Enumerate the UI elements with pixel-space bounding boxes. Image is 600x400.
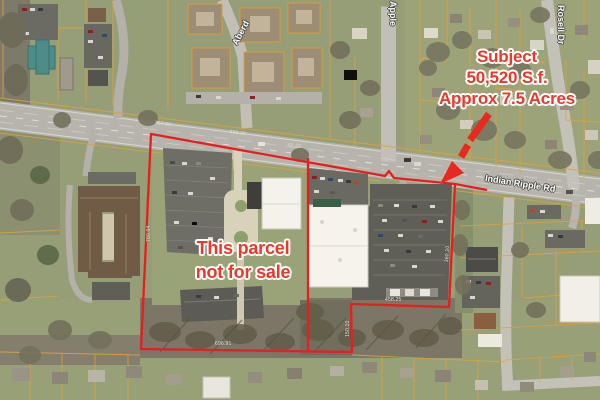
dimension-parcel-east: 380.20 [444,246,451,263]
dimension-parcel-south-east: 458.25 [385,297,402,303]
dimension-parcel-notch: 150.10 [345,321,351,338]
dimension-parcel-west: 780.04 [146,226,152,243]
aerial-map-exhibit: Subject 50,520 S.f. Approx 7.5 Acres Thi… [0,0,600,400]
subject-line-2: 50,520 S.f. [422,67,592,88]
dimension-parcel-south-west: 696.91 [215,341,232,347]
subject-line-1: Subject [422,46,592,67]
subject-annotation: Subject 50,520 S.f. Approx 7.5 Acres [422,46,592,109]
road-label-rosell: Rosell Dr [556,5,566,45]
not-for-sale-line-2: not for sale [158,260,328,284]
not-for-sale-line-1: This parcel [158,236,328,260]
subject-line-3: Approx 7.5 Acres [422,88,592,109]
road-label-apple: Apple [388,1,398,26]
not-for-sale-annotation: This parcel not for sale [158,236,328,284]
